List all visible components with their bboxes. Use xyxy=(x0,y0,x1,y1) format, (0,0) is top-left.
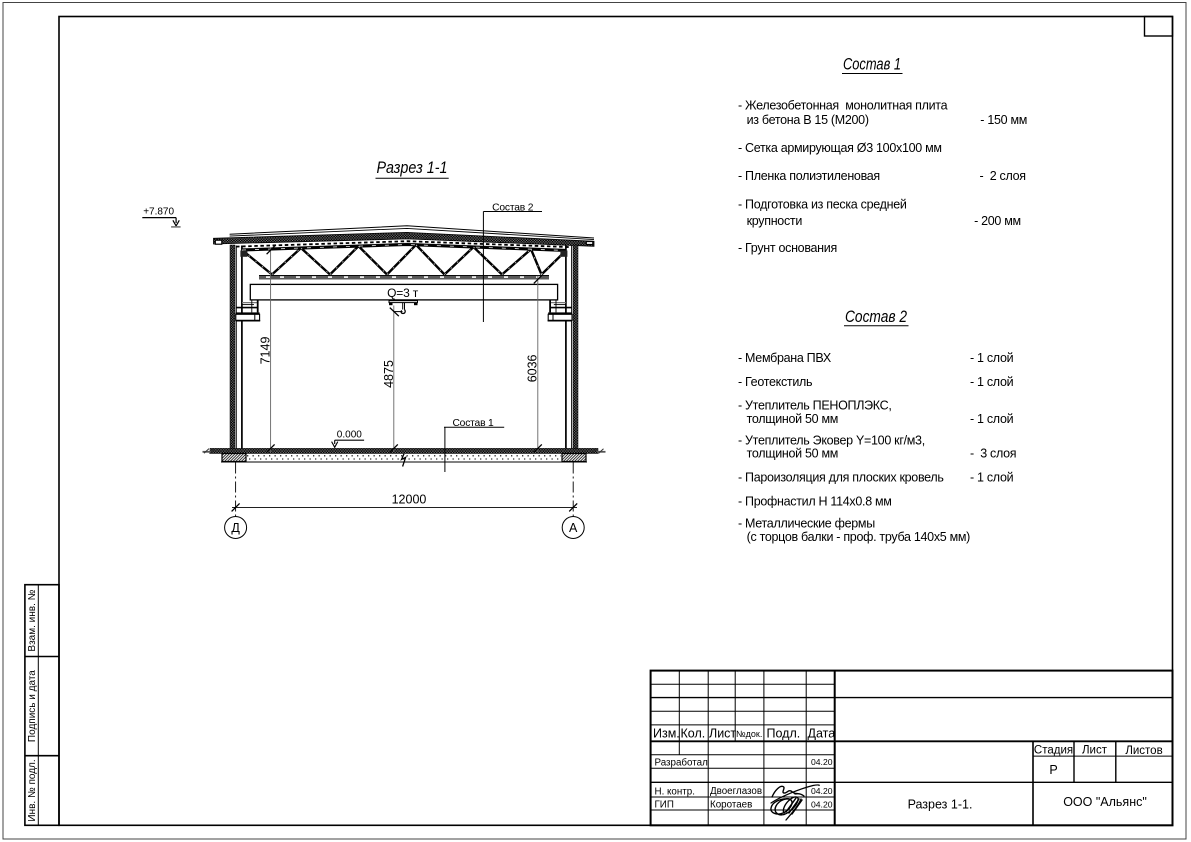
svg-text:толщиной 50 мм: толщиной 50 мм xyxy=(747,447,839,461)
svg-text:- Утеплитель Эковер Y=100 кг/м: - Утеплитель Эковер Y=100 кг/м3, xyxy=(738,433,925,447)
svg-text:толщиной 50 мм: толщиной 50 мм xyxy=(747,412,839,426)
svg-text:из бетона В 15 (М200): из бетона В 15 (М200) xyxy=(747,113,869,127)
svg-text:- 150 мм: - 150 мм xyxy=(980,113,1027,127)
svg-text:- 1 слой: - 1 слой xyxy=(970,412,1014,426)
svg-text:- Пленка полиэтиленовая: - Пленка полиэтиленовая xyxy=(738,169,880,183)
svg-text:- 200 мм: - 200 мм xyxy=(974,214,1021,228)
svg-text:ГИП: ГИП xyxy=(655,800,674,811)
svg-text:- Пароизоляция для плоских кро: - Пароизоляция для плоских кровель xyxy=(738,471,944,485)
svg-text:А: А xyxy=(569,521,578,535)
svg-text:- Подготовка из песка средней: - Подготовка из песка средней xyxy=(738,198,907,212)
svg-text:4875: 4875 xyxy=(382,360,396,388)
svg-text:- Железобетонная монолитная п: - Железобетонная монолитная плита xyxy=(738,99,948,113)
svg-text:Подпись и дата: Подпись и дата xyxy=(27,670,38,742)
svg-text:Взам. инв. №: Взам. инв. № xyxy=(27,589,38,651)
svg-text:(с торцов балки - проф. труба: (с торцов балки - проф. труба 140х5 мм) xyxy=(747,530,971,544)
svg-text:Р: Р xyxy=(1049,763,1057,777)
svg-text:Разработал: Разработал xyxy=(655,757,709,768)
svg-text:Разрез 1-1.: Разрез 1-1. xyxy=(908,798,973,812)
svg-text:- Металлические фермы: - Металлические фермы xyxy=(738,517,875,531)
svg-text:Лист: Лист xyxy=(709,727,736,741)
svg-text:- 2 слоя: - 2 слоя xyxy=(980,169,1026,183)
svg-text:- Геотекстиль: - Геотекстиль xyxy=(738,375,812,389)
svg-text:0.000: 0.000 xyxy=(337,430,362,441)
svg-text:Состав 1: Состав 1 xyxy=(843,56,901,74)
svg-text:- 1 слой: - 1 слой xyxy=(970,375,1014,389)
svg-text:6036: 6036 xyxy=(525,354,539,382)
svg-text:- Профнастил Н 114х0.8 мм: - Профнастил Н 114х0.8 мм xyxy=(738,494,892,508)
svg-text:04.20: 04.20 xyxy=(811,757,833,767)
svg-text:- Сетка армирующая Ø3 100х100: - Сетка армирующая Ø3 100х100 мм xyxy=(738,141,942,155)
svg-text:крупности: крупности xyxy=(747,214,803,228)
svg-text:04.20: 04.20 xyxy=(811,799,833,809)
svg-text:- 1 слой: - 1 слой xyxy=(970,471,1014,485)
svg-text:Инв. № подл.: Инв. № подл. xyxy=(27,759,38,821)
svg-text:Лист: Лист xyxy=(1082,744,1108,756)
svg-text:- Мембрана ПВХ: - Мембрана ПВХ xyxy=(738,351,832,365)
svg-text:№док.: №док. xyxy=(736,729,762,739)
svg-text:Н. контр.: Н. контр. xyxy=(655,787,695,798)
svg-text:- 1 слой: - 1 слой xyxy=(970,351,1014,365)
svg-text:+7.870: +7.870 xyxy=(143,207,174,218)
svg-text:- Утеплитель ПЕНОПЛЭКС,: - Утеплитель ПЕНОПЛЭКС, xyxy=(738,399,892,413)
svg-text:Кол.: Кол. xyxy=(681,727,706,741)
svg-text:Стадия: Стадия xyxy=(1034,744,1073,756)
svg-text:Подл.: Подл. xyxy=(767,727,801,741)
svg-text:Дата: Дата xyxy=(808,727,836,741)
svg-text:Состав 2: Состав 2 xyxy=(845,308,907,326)
svg-text:12000: 12000 xyxy=(392,493,427,507)
svg-text:04.20: 04.20 xyxy=(811,786,833,796)
svg-text:Коротаев: Коротаев xyxy=(710,800,752,811)
svg-text:ООО "Альянс": ООО "Альянс" xyxy=(1063,795,1147,809)
svg-text:7149: 7149 xyxy=(259,337,273,365)
svg-text:Изм.: Изм. xyxy=(653,727,680,741)
svg-text:Двоеглазов: Двоеглазов xyxy=(710,786,762,797)
svg-text:Листов: Листов xyxy=(1125,745,1162,757)
svg-text:- Грунт основания: - Грунт основания xyxy=(738,241,837,255)
svg-text:- 3 слоя: - 3 слоя xyxy=(970,447,1016,461)
svg-text:Q=3 т: Q=3 т xyxy=(387,286,419,300)
svg-text:Разрез 1-1: Разрез 1-1 xyxy=(377,159,448,177)
svg-text:Д: Д xyxy=(231,521,240,535)
